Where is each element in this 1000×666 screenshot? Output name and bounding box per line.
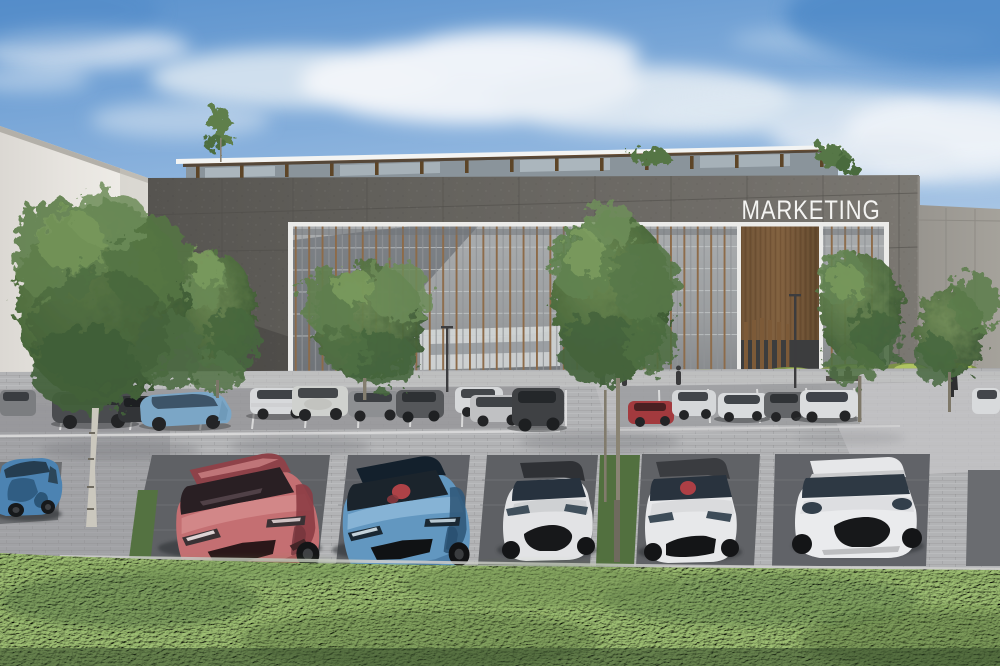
svg-text:MARKETING: MARKETING xyxy=(742,195,881,225)
